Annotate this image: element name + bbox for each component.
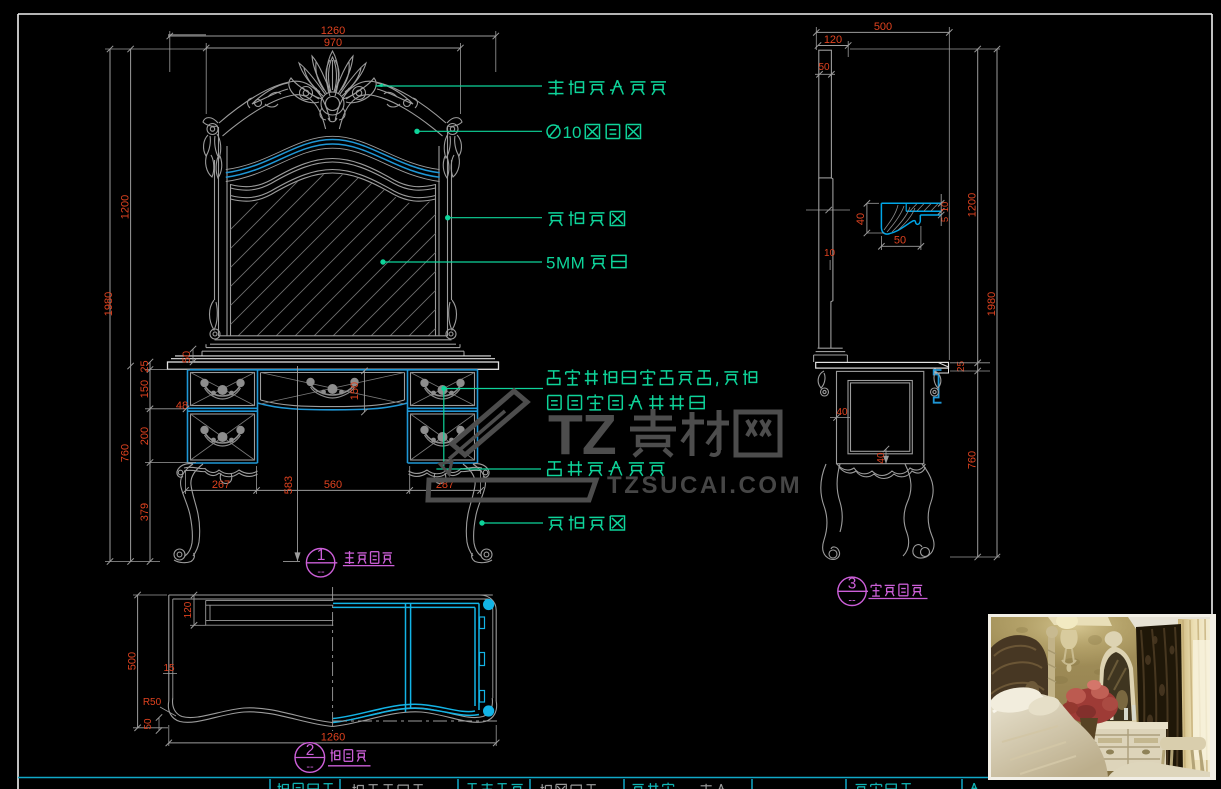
- svg-text:25: 25: [956, 361, 967, 373]
- svg-text:760: 760: [967, 451, 979, 469]
- svg-text:48: 48: [176, 400, 188, 412]
- svg-text:1980: 1980: [986, 292, 998, 316]
- svg-text:40: 40: [855, 213, 867, 225]
- svg-text:200: 200: [139, 427, 151, 445]
- svg-text:379: 379: [139, 503, 151, 521]
- svg-text:50: 50: [818, 62, 830, 73]
- svg-text:970: 970: [324, 37, 342, 49]
- svg-text:TZSUCAI.COM: TZSUCAI.COM: [607, 472, 802, 499]
- svg-text:1980: 1980: [103, 292, 115, 316]
- svg-text:500: 500: [127, 652, 139, 670]
- svg-text:1260: 1260: [321, 732, 345, 744]
- svg-text:25: 25: [139, 360, 151, 372]
- svg-text:40: 40: [876, 452, 887, 464]
- svg-text:10: 10: [563, 123, 582, 142]
- svg-text:50: 50: [143, 718, 154, 730]
- svg-text:R50: R50: [143, 697, 162, 708]
- svg-text:TZ: TZ: [548, 403, 616, 467]
- svg-text:--: --: [848, 595, 856, 607]
- svg-text:50: 50: [894, 235, 906, 247]
- svg-text:5MM: 5MM: [546, 254, 585, 273]
- svg-text:1200: 1200: [120, 195, 132, 219]
- svg-text:50: 50: [181, 351, 193, 363]
- svg-text:267: 267: [212, 479, 230, 491]
- svg-text:120: 120: [824, 34, 842, 46]
- svg-text:10: 10: [824, 248, 836, 259]
- svg-text:150: 150: [139, 380, 151, 398]
- svg-text:1260: 1260: [321, 25, 345, 37]
- svg-text:--: --: [317, 566, 325, 578]
- svg-text:3: 3: [848, 576, 857, 593]
- svg-text:583: 583: [283, 476, 295, 494]
- svg-text:150: 150: [349, 382, 361, 400]
- svg-text:760: 760: [120, 444, 132, 462]
- svg-text:120: 120: [183, 601, 194, 618]
- svg-text:15: 15: [163, 663, 175, 674]
- svg-text:1: 1: [317, 547, 326, 564]
- svg-text:2: 2: [306, 742, 315, 759]
- svg-text:1200: 1200: [967, 193, 979, 217]
- svg-text:--: --: [306, 761, 314, 773]
- svg-text:560: 560: [324, 479, 342, 491]
- svg-text:500: 500: [874, 21, 892, 33]
